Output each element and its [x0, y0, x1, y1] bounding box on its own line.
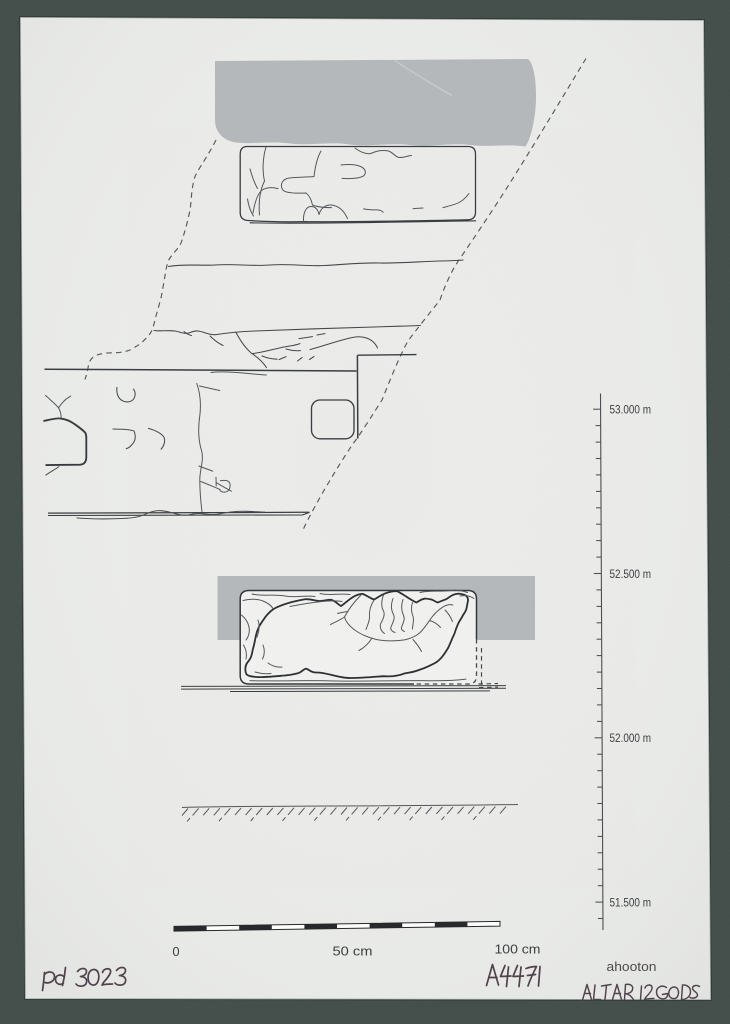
- svg-text:0: 0: [172, 944, 179, 959]
- svg-text:ahooton: ahooton: [607, 959, 657, 974]
- svg-text:52.000 m: 52.000 m: [610, 731, 652, 745]
- svg-text:51.500 m: 51.500 m: [610, 896, 652, 910]
- svg-text:53.000 m: 53.000 m: [610, 403, 652, 417]
- svg-text:52.500 m: 52.500 m: [610, 567, 652, 581]
- svg-text:50 cm: 50 cm: [333, 943, 373, 958]
- svg-text:100 cm: 100 cm: [495, 942, 541, 957]
